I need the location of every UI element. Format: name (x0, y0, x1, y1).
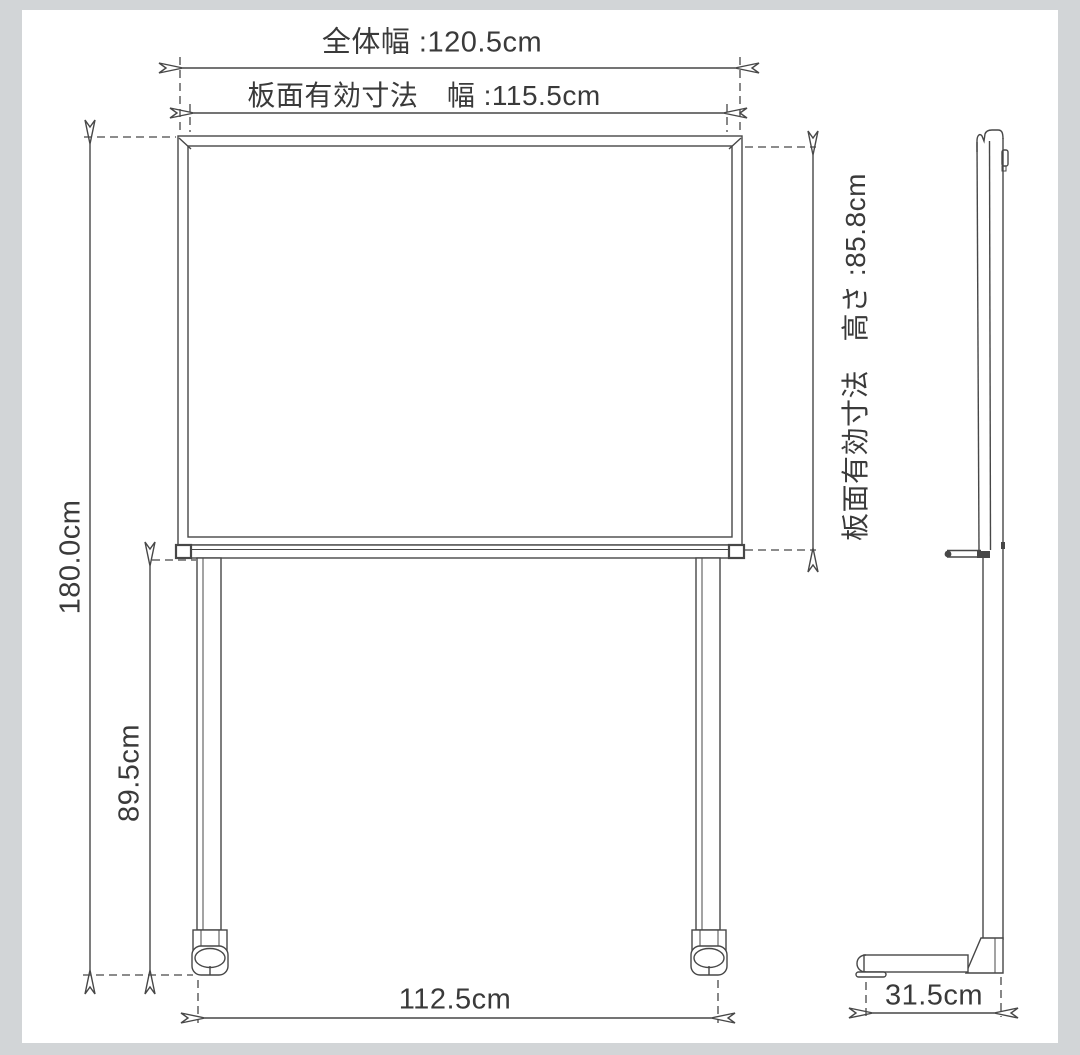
leg-height-label: 89.5cm (116, 724, 145, 822)
pen-tray-front (176, 545, 744, 558)
diagram-linework (0, 0, 1080, 1055)
left-caster (192, 930, 228, 975)
board-height-label: 板面有効寸法 高さ :85.8cm (842, 173, 870, 541)
depth-label: 31.5cm (885, 982, 983, 1011)
foot-side (856, 955, 968, 977)
foot-bracket (966, 938, 1003, 973)
caster-span-label: 112.5cm (399, 986, 512, 1015)
pen-tray-side (945, 551, 990, 559)
left-leg (197, 558, 221, 930)
dim-leg-height (150, 560, 196, 970)
front-view (176, 136, 744, 975)
tray-end-cap-left (176, 545, 191, 558)
board-width-label: 板面有効寸法 幅 :115.5cm (247, 82, 600, 110)
board-front (178, 136, 742, 545)
total-height-label: 180.0cm (57, 500, 86, 615)
side-view (856, 130, 1008, 977)
tray-end-cap-right (729, 545, 744, 558)
right-caster (691, 930, 727, 975)
dimension-diagram: 全体幅 :120.5cm 板面有効寸法 幅 :115.5cm 板面有効寸法 高さ… (0, 0, 1080, 1055)
right-leg (696, 558, 720, 930)
leg-side (966, 558, 1003, 973)
dim-board-height (745, 147, 816, 550)
board-side (977, 130, 1008, 940)
total-width-label: 全体幅 :120.5cm (322, 29, 542, 58)
